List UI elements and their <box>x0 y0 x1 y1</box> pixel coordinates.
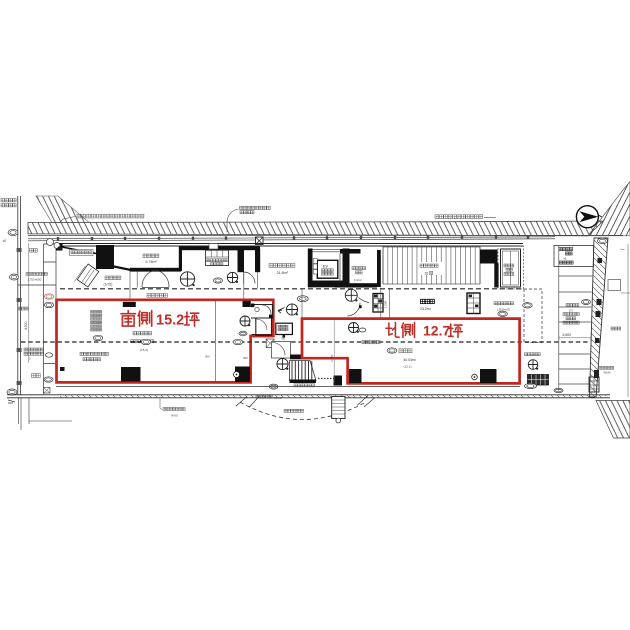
svg-text:1,700×650: 1,700×650 <box>28 278 42 282</box>
svg-text:(1/15): (1/15) <box>104 283 113 287</box>
svg-text:40.04m²: 40.04m² <box>404 358 417 362</box>
svg-text:3,970: 3,970 <box>330 354 334 362</box>
svg-text:EV: EV <box>323 265 329 269</box>
svg-text:23.2m²: 23.2m² <box>420 307 432 311</box>
svg-text:31.8m²: 31.8m² <box>277 271 289 275</box>
svg-text:300: 300 <box>243 356 248 360</box>
svg-text:(12.1): (12.1) <box>404 365 412 369</box>
svg-text:4,500: 4,500 <box>24 321 28 330</box>
svg-text:15.2: 15.2 <box>156 313 184 329</box>
svg-text:300: 300 <box>205 355 210 359</box>
svg-text:W180: W180 <box>604 371 612 375</box>
svg-text:5,800: 5,800 <box>563 333 572 337</box>
svg-text:10.65: 10.65 <box>274 396 282 400</box>
svg-text:±0: ±0 <box>3 239 7 243</box>
svg-text:1,980: 1,980 <box>384 300 388 308</box>
svg-text:20: 20 <box>425 272 429 276</box>
svg-text:(15.2): (15.2) <box>140 348 148 352</box>
svg-text:12.7: 12.7 <box>423 323 450 339</box>
svg-text:1.0m²: 1.0m² <box>354 278 362 282</box>
svg-text:6.78m²: 6.78m² <box>146 260 158 264</box>
svg-text:W.60: W.60 <box>171 414 178 418</box>
svg-text:(7): (7) <box>569 309 573 313</box>
svg-text:×2: ×2 <box>563 257 567 261</box>
